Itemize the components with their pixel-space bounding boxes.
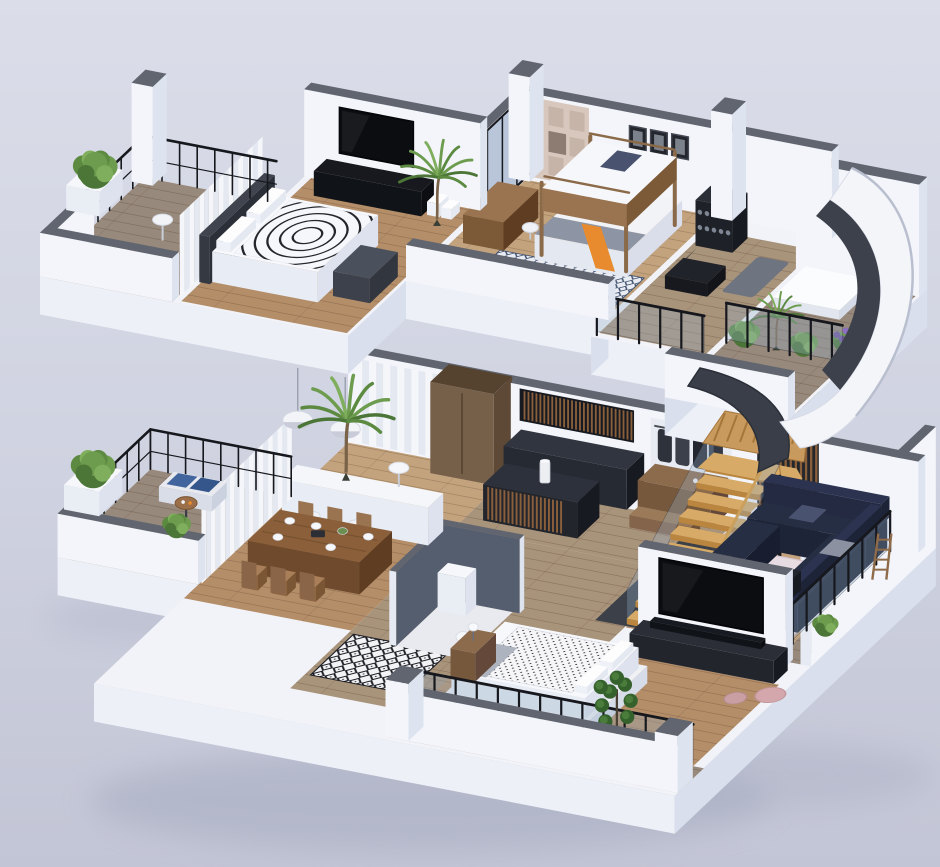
slat (543, 395, 545, 424)
slat (587, 403, 589, 432)
curtain-fold (249, 452, 254, 538)
wall-end (608, 277, 615, 320)
leaf-highlight (597, 700, 605, 708)
photo (654, 134, 664, 151)
curtain-fold (185, 206, 190, 292)
side-south (711, 110, 732, 220)
foliage (77, 165, 94, 182)
slat (516, 492, 518, 525)
slat (499, 489, 501, 522)
slat (540, 497, 542, 530)
curtain-fold (404, 368, 411, 453)
side-east (732, 101, 746, 221)
curtain-fold (259, 443, 264, 529)
slat (631, 412, 633, 441)
floorplan-3d-render: 3D isometric cutaway render of a two-sto… (0, 0, 940, 867)
round-table (389, 462, 409, 473)
side-south (386, 680, 409, 741)
slat (627, 411, 629, 440)
slat (512, 492, 514, 525)
slat (552, 499, 554, 532)
chair-back (300, 572, 315, 602)
plate (363, 533, 373, 540)
slat (548, 499, 550, 532)
foliage (177, 523, 188, 534)
curtain-fold (418, 371, 425, 456)
slat (556, 500, 558, 533)
unit-shelf (548, 106, 563, 128)
foliage (826, 623, 836, 633)
side-south (451, 648, 476, 681)
foliage (165, 523, 176, 534)
curtain-fold (390, 365, 397, 450)
wall-end (918, 455, 925, 553)
slat (567, 399, 569, 428)
cup (181, 500, 185, 504)
wall-end (480, 117, 487, 211)
trunk (346, 421, 348, 472)
slat (611, 408, 613, 437)
curtain-fold (194, 197, 199, 283)
curtain-fold (376, 363, 383, 448)
slat (535, 393, 537, 422)
curtain-fold (189, 201, 194, 287)
curtain-fold (268, 434, 273, 520)
slat (571, 400, 573, 429)
slat (560, 501, 562, 534)
slat (603, 406, 605, 435)
desk-chair (522, 222, 538, 232)
slat (524, 494, 526, 527)
side-south (438, 573, 466, 617)
wall-end (389, 570, 396, 646)
leaf-highlight (595, 682, 603, 690)
parapet-pillar-west (386, 665, 424, 741)
side-south (655, 732, 678, 794)
slat (619, 409, 621, 438)
plate (285, 517, 295, 524)
unit-niche (548, 131, 566, 155)
slat (623, 410, 625, 439)
curtain-fold (397, 367, 404, 452)
side-south (132, 83, 153, 186)
curtain-fold (383, 364, 390, 449)
side-south (509, 73, 530, 182)
bath-sink (438, 563, 477, 616)
foliage (75, 464, 92, 481)
slat (615, 409, 617, 438)
slat (503, 490, 505, 523)
chair-back (271, 566, 286, 596)
round-table (153, 214, 173, 225)
render-canvas: 3D isometric cutaway render of a two-sto… (0, 0, 940, 867)
bowl (188, 501, 192, 505)
plate (311, 523, 321, 530)
table-lamp (468, 623, 478, 631)
balcony-pillar (132, 70, 167, 186)
chair-back (242, 560, 257, 589)
side-east (530, 64, 544, 182)
leaf-highlight (600, 716, 608, 724)
slat (487, 487, 489, 520)
slat (591, 404, 593, 433)
slat (599, 406, 601, 435)
slat (547, 396, 549, 425)
wall-end (788, 371, 795, 421)
slat (544, 498, 546, 531)
side-south (441, 207, 452, 219)
salad-bowl (338, 528, 348, 535)
leaf-highlight (622, 711, 630, 719)
slat (595, 405, 597, 434)
slat (559, 398, 561, 427)
slat (507, 491, 509, 524)
foliage (96, 165, 113, 182)
slat (579, 402, 581, 431)
plate (273, 534, 283, 541)
serving-tray (311, 530, 325, 537)
parapet-pillar-east (655, 717, 693, 793)
curtain-fold (240, 461, 245, 547)
curtain-fold (362, 360, 369, 445)
pillar-kids-corner (509, 60, 544, 182)
wall-end (919, 177, 927, 297)
slat (491, 488, 493, 521)
slat (520, 493, 522, 526)
slat (539, 394, 541, 423)
curtain-fold (278, 425, 283, 511)
slat (563, 399, 565, 428)
slat (555, 397, 557, 426)
pillar-gym-corner (711, 97, 746, 221)
curtain-fold (411, 369, 418, 454)
plate (326, 544, 336, 551)
hall-curtains (355, 358, 439, 458)
leaf-highlight (611, 672, 619, 680)
side-east (153, 74, 167, 186)
curtain-fold (180, 210, 185, 296)
bistro-table (175, 497, 197, 510)
slat (528, 495, 530, 528)
slat (583, 402, 585, 431)
curtain-fold (230, 470, 235, 556)
side-south (199, 235, 210, 285)
leaf-highlight (625, 695, 633, 703)
slat (536, 496, 538, 529)
slat (528, 392, 530, 421)
foliage (815, 623, 825, 633)
cylinder-lamp (540, 461, 550, 483)
unit-shelf (570, 110, 585, 132)
slat (524, 391, 526, 420)
curtain-fold (282, 421, 287, 507)
slat (532, 393, 534, 422)
slat (551, 396, 553, 425)
tall-wardrobe (430, 364, 512, 485)
wall-end (172, 252, 179, 302)
foliage (94, 465, 111, 482)
slat (495, 488, 497, 521)
slat (607, 407, 609, 436)
wall-end (198, 534, 205, 584)
slat (575, 401, 577, 430)
wall-end (520, 535, 525, 614)
cylinder-lamp-top (540, 459, 550, 463)
photo (633, 130, 643, 147)
slat (532, 496, 534, 529)
